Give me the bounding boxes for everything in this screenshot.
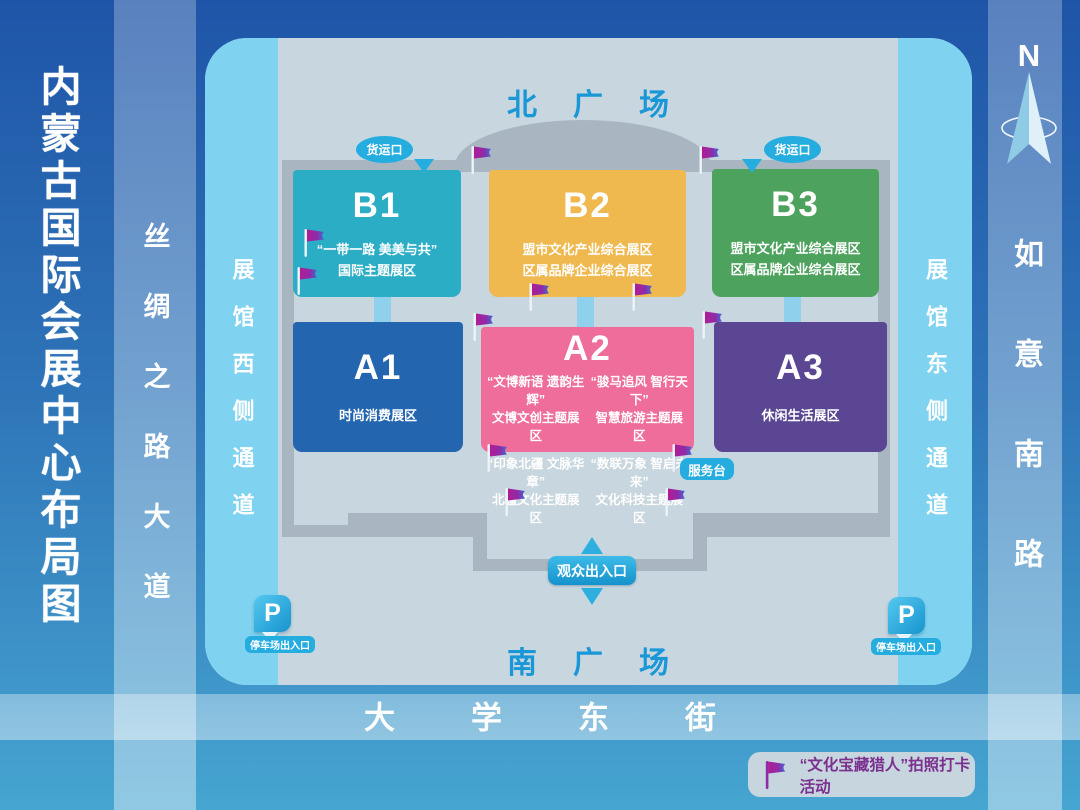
hall-a2-zone-1: “文博新语 遗韵生辉” 文博文创主题展区	[487, 373, 585, 446]
hall-b1-code: B1	[353, 186, 402, 226]
venue-map: 展馆西侧通道 展馆东侧通道 北广场 南广场 B1 “一带一路 美美与共” 国际主…	[205, 38, 972, 685]
freight-gate-left-badge: 货运口	[356, 136, 413, 163]
road-silk-road-avenue-label: 丝绸之路大道	[136, 222, 175, 642]
hall-a3-code: A3	[776, 348, 825, 388]
hall-a2-zone-3: “印象北疆 文脉华章” 北疆文化主题展区	[487, 455, 585, 528]
freight-gate-right-badge: 货运口	[764, 136, 821, 163]
hall-b1-line1: “一带一路 美美与共”	[317, 240, 438, 261]
visitor-gate-badge: 观众出入口	[548, 556, 636, 585]
visitor-gate-down-arrow-icon	[581, 588, 603, 605]
hall-a2: A2 “文博新语 遗韵生辉” 文博文创主题展区 “骏马追风 智行天下” 智慧旅游…	[481, 327, 694, 452]
west-passage-label: 展馆西侧通道	[226, 258, 258, 540]
hall-a2-code: A2	[563, 329, 612, 369]
checkin-activity-legend: “文化宝藏猎人”拍照打卡活动	[748, 752, 975, 797]
parking-left-label: 停车场出入口	[245, 636, 315, 653]
road-university-east-street-label: 大学东街	[0, 693, 1080, 738]
venue-layout-poster: 丝绸之路大道 如意南路 大学东街 内蒙古国际会展中心布局图 N 展馆西侧通道 展…	[0, 0, 1080, 810]
hall-a1-code: A1	[354, 348, 403, 388]
hall-b2-code: B2	[563, 186, 612, 226]
parking-icon: P	[254, 595, 291, 632]
hall-b3-line2: 区属品牌企业综合展区	[730, 260, 860, 281]
parking-icon: P	[888, 597, 925, 634]
checkin-flag-icon	[764, 760, 787, 790]
north-plaza-label: 北广场	[278, 80, 898, 124]
hall-b3-line1: 盟市文化产业综合展区	[730, 239, 860, 260]
hall-a2-zone-4: “数联万象 智启未来” 文化科技主题展区	[591, 455, 689, 528]
road-silk-road-avenue: 丝绸之路大道	[114, 0, 196, 810]
hall-b2-line2: 区属品牌企业综合展区	[522, 261, 652, 282]
compass-north-icon: N	[994, 38, 1064, 188]
service-desk-badge: 服务台	[680, 458, 734, 480]
visitor-gate-up-arrow-icon	[581, 537, 603, 554]
hall-b2-line1: 盟市文化产业综合展区	[522, 240, 652, 261]
building-wall-bottom	[701, 513, 890, 537]
page-title: 内蒙古国际会展中心布局图	[0, 0, 114, 694]
hall-a1-line1: 时尚消费展区	[339, 406, 417, 427]
road-ruyi-south-road-label: 如意南路	[1003, 238, 1047, 638]
hall-a1: A1 时尚消费展区	[293, 322, 463, 452]
hall-b2: B2 盟市文化产业综合展区 区属品牌企业综合展区	[489, 170, 686, 297]
freight-gate-left-arrow-icon	[414, 159, 434, 173]
parking-right-label: 停车场出入口	[871, 638, 941, 655]
freight-gate-right-arrow-icon	[742, 159, 762, 173]
east-passage-label: 展馆东侧通道	[919, 258, 951, 540]
hall-b1-line2: 国际主题展区	[317, 261, 438, 282]
hall-a3: A3 休闲生活展区	[714, 322, 887, 452]
south-plaza-label: 南广场	[278, 638, 898, 682]
hall-b3-code: B3	[771, 185, 820, 225]
east-passage: 展馆东侧通道	[898, 38, 972, 685]
hall-b3: B3 盟市文化产业综合展区 区属品牌企业综合展区	[712, 169, 879, 297]
building-wall-bottom	[282, 525, 352, 537]
hall-a3-line1: 休闲生活展区	[761, 406, 839, 427]
building-wall-bottom	[348, 513, 478, 537]
hall-b1: B1 “一带一路 美美与共” 国际主题展区	[293, 170, 461, 297]
hall-connector	[577, 294, 594, 330]
checkin-activity-label: “文化宝藏猎人”拍照打卡活动	[800, 753, 975, 797]
west-passage: 展馆西侧通道	[205, 38, 278, 685]
hall-a2-zone-2: “骏马追风 智行天下” 智慧旅游主题展区	[591, 373, 689, 446]
road-university-east-street: 大学东街	[0, 694, 1080, 740]
compass-arrow-icon	[1000, 66, 1058, 186]
